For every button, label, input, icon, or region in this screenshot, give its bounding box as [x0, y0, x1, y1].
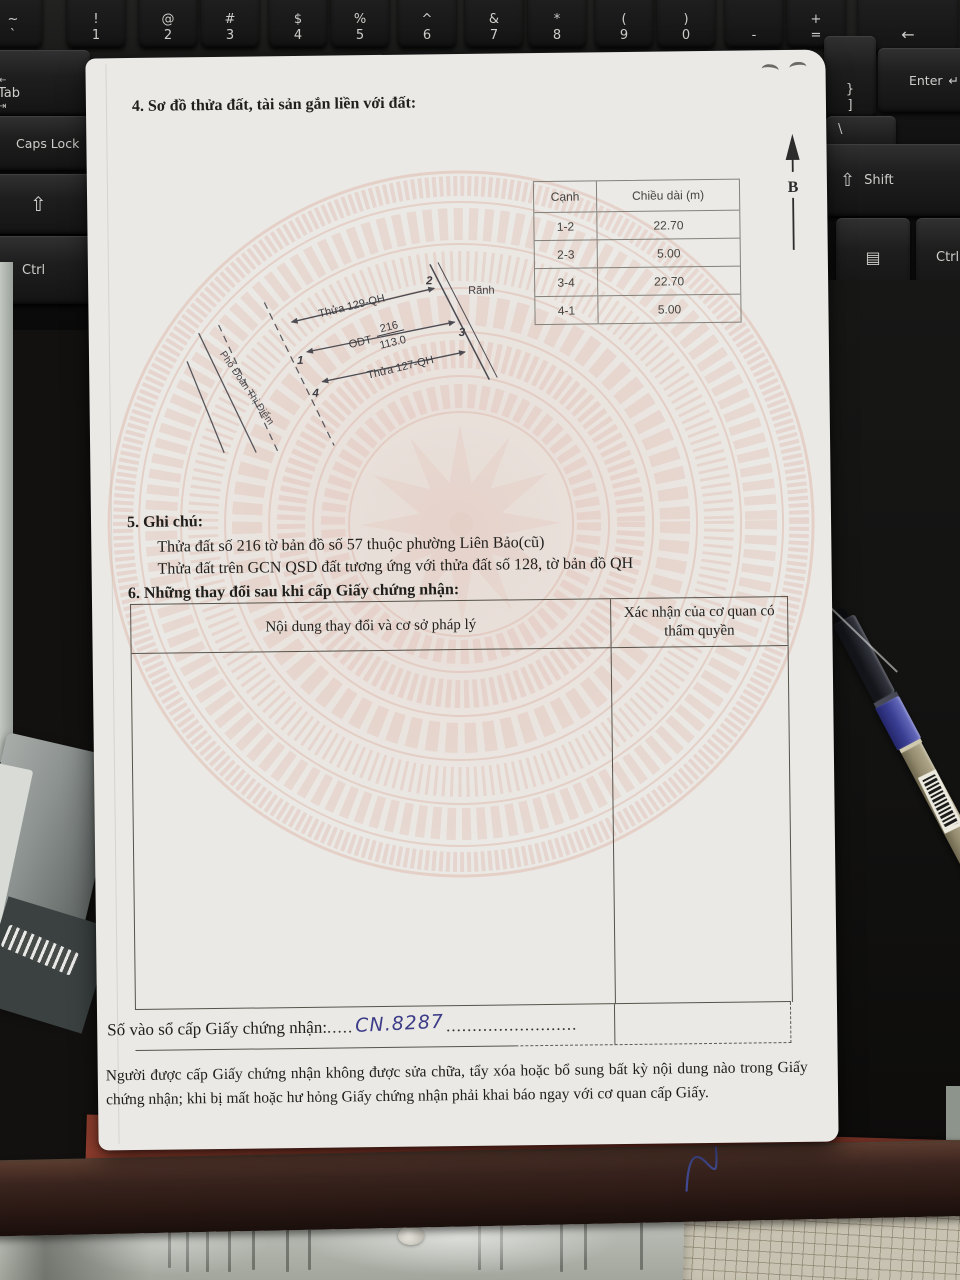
- edge-length-table: Cạnh Chiều dài (m) 1-2 22.70 2-3 5.00 3-…: [533, 179, 742, 326]
- key-label: 0: [682, 28, 690, 44]
- key-label: 5: [356, 28, 364, 44]
- key-6: ^6: [398, 0, 456, 47]
- changes-table-body: [132, 646, 792, 1010]
- key-label: 9: [620, 28, 628, 44]
- column-divider: [614, 1004, 616, 1045]
- key-label: Ctrl: [22, 263, 45, 278]
- vertex-3: 3: [459, 327, 466, 339]
- key-label: Enter: [909, 73, 943, 88]
- vertex-4: 4: [311, 388, 319, 400]
- parcel-diagram: Phố Đoàn Thị Điểm Thửa 129-QH ODT 216 11…: [172, 261, 525, 495]
- section4-title: 4. Sơ đồ thửa đất, tài sản gắn liền với …: [132, 95, 416, 116]
- key-label: Ctrl: [936, 250, 959, 265]
- column-divider: [611, 648, 617, 1004]
- key-label: ^: [422, 12, 433, 28]
- key-label: 2: [164, 28, 172, 44]
- backspace-arrow-icon: ←: [901, 25, 914, 44]
- key-label: !: [93, 12, 98, 28]
- serial-label: Số vào sổ cấp Giấy chứng nhận:: [107, 1018, 327, 1040]
- ditch-label: Rãnh: [468, 285, 494, 297]
- enter-return-icon: ↵: [949, 73, 959, 88]
- key-7: &7: [465, 0, 523, 47]
- ditch-line: [438, 262, 497, 379]
- land-certificate-page: 4. Sơ đồ thửa đất, tài sản gắn liền với …: [85, 50, 838, 1151]
- table-header-row: Cạnh Chiều dài (m): [534, 180, 739, 213]
- north-arrow-icon: B: [770, 126, 816, 263]
- photo-scene: ~ ` !1 @2 #3 $4 %5 ^6 &7 *8 (9 )0 - += ←…: [0, 0, 960, 1280]
- parcel-216-label-group: ODT 216 113.0: [346, 318, 408, 359]
- key-label: 8: [553, 28, 561, 44]
- key-9: (9: [595, 0, 653, 47]
- bottom-border-dashed: [516, 1042, 792, 1046]
- cell-edge: 1-2: [534, 212, 597, 240]
- key-2: @2: [139, 0, 197, 47]
- cell-length: 5.00: [598, 295, 740, 324]
- key-label: Tab: [0, 86, 20, 102]
- context-menu-icon: ▤: [865, 248, 880, 267]
- tab-in-icon: ⇤: [0, 76, 6, 86]
- key-dash: -: [725, 0, 783, 47]
- vertex-2: 2: [425, 275, 433, 287]
- key-label: Shift: [864, 173, 894, 188]
- changes-table: Nội dung thay đổi và cơ sở pháp lý Xác n…: [130, 596, 793, 1010]
- cell-edge: 3-4: [535, 268, 598, 296]
- land-use-label: ODT: [348, 334, 374, 351]
- cell-length: 22.70: [598, 267, 740, 296]
- key-enter: Enter ↵: [878, 48, 960, 112]
- right-border-dashed: [790, 1002, 792, 1043]
- key-label: (: [621, 12, 626, 28]
- cell-length: 5.00: [598, 239, 740, 268]
- north-label: B: [788, 179, 799, 196]
- handwritten-serial-number: CN.8287: [355, 1011, 445, 1037]
- cell-edge: 2-3: [535, 240, 598, 268]
- key-1: !1: [67, 0, 125, 47]
- table-row: 3-4 22.70: [535, 266, 740, 297]
- key-label: #: [225, 12, 236, 28]
- key-label: @: [162, 12, 175, 28]
- changes-table-header: Nội dung thay đổi và cơ sở pháp lý Xác n…: [131, 597, 788, 654]
- key-label: `: [10, 28, 17, 44]
- key-label: 7: [490, 28, 498, 44]
- parcel-129-label: Thửa 129-QH: [317, 293, 386, 321]
- key-label: $: [294, 12, 302, 28]
- key-label: *: [554, 12, 561, 28]
- vertex-1: 1: [297, 355, 304, 367]
- dotted-leader: .....: [327, 1017, 353, 1036]
- tab-out-icon: ⇥: [0, 102, 6, 112]
- pen-check-mark: [789, 61, 807, 73]
- dotted-leader: .........................: [446, 1015, 577, 1036]
- key-label: =: [811, 28, 822, 44]
- bottom-border-solid: [135, 1045, 515, 1051]
- key-label: %: [354, 12, 366, 28]
- key-label: ): [683, 12, 688, 28]
- key-0: )0: [657, 0, 715, 47]
- pen-check-mark: [761, 63, 779, 76]
- shift-arrow-icon: ⇧: [30, 192, 47, 216]
- key-5: %5: [331, 0, 389, 47]
- key-label: &: [489, 12, 499, 28]
- col-header-content: Nội dung thay đổi và cơ sở pháp lý: [131, 599, 611, 653]
- key-label: +: [811, 12, 822, 28]
- key-label: ]: [847, 98, 852, 114]
- blue-ink-scribble: [671, 1137, 731, 1198]
- key-8: *8: [528, 0, 586, 47]
- key-tab: ⇤ Tab ⇥: [0, 50, 90, 115]
- key-label: 3: [226, 28, 234, 44]
- wall-strip-left: [0, 262, 13, 762]
- key-label: 6: [423, 28, 431, 44]
- table-row: 1-2 22.70: [534, 210, 739, 241]
- key-label: 4: [294, 28, 302, 44]
- key-label: 1: [92, 28, 100, 44]
- road-dashed-line: [264, 302, 334, 447]
- footer-warning-note: Người được cấp Giấy chứng nhận không đượ…: [106, 1056, 809, 1113]
- cell-edge: 4-1: [535, 296, 598, 324]
- key-label: }: [846, 82, 854, 98]
- col-header-confirmation: Xác nhận của cơ quan có thẩm quyền: [610, 597, 788, 647]
- plastic-knot: [398, 1226, 424, 1245]
- table-row: 2-3 5.00: [535, 238, 740, 269]
- street-name-label: Phố Đoàn Thị Điểm: [217, 349, 276, 427]
- col-header-canh: Cạnh: [534, 181, 597, 212]
- key-3: #3: [201, 0, 259, 47]
- key-4: $4: [269, 0, 327, 47]
- key-label: ~: [8, 12, 19, 28]
- parcel-number-label: 216: [379, 319, 400, 335]
- key-bracket: } ]: [824, 36, 876, 117]
- table-row: 4-1 5.00: [535, 294, 740, 325]
- ditch-line: [430, 264, 489, 381]
- key-label: -: [752, 28, 757, 44]
- cell-length: 22.70: [597, 211, 739, 240]
- col-header-chieu-dai: Chiều dài (m): [597, 180, 739, 212]
- key-backtick: ~ `: [0, 0, 42, 47]
- parcel-127-label: Thửa 127-QH: [366, 354, 435, 382]
- section5-title: 5. Ghi chú:: [127, 513, 203, 532]
